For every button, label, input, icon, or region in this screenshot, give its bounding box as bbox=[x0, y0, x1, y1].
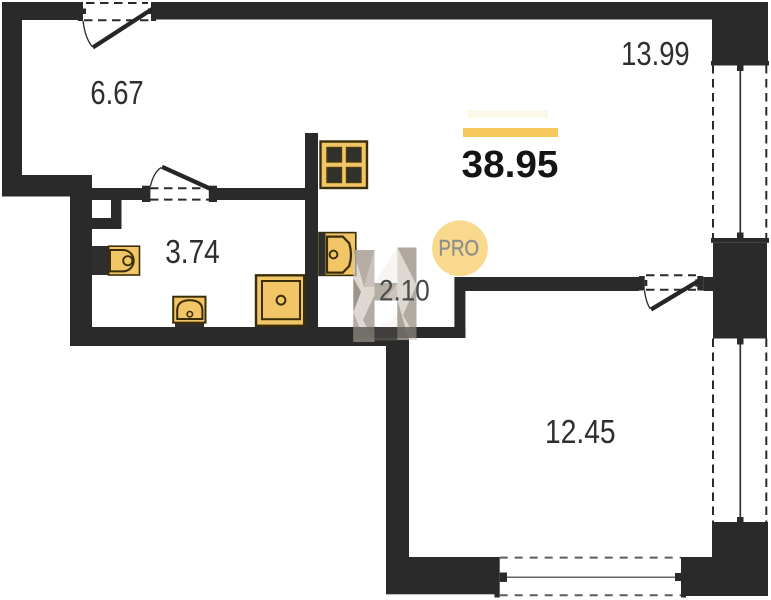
svg-text:12.45: 12.45 bbox=[545, 413, 616, 451]
svg-text:13.99: 13.99 bbox=[621, 37, 690, 73]
svg-text:38.95: 38.95 bbox=[462, 143, 559, 186]
svg-text:6.67: 6.67 bbox=[90, 76, 143, 112]
svg-text:2.10: 2.10 bbox=[379, 274, 430, 307]
svg-text:3.74: 3.74 bbox=[165, 234, 220, 271]
svg-text:PRO: PRO bbox=[439, 237, 480, 261]
